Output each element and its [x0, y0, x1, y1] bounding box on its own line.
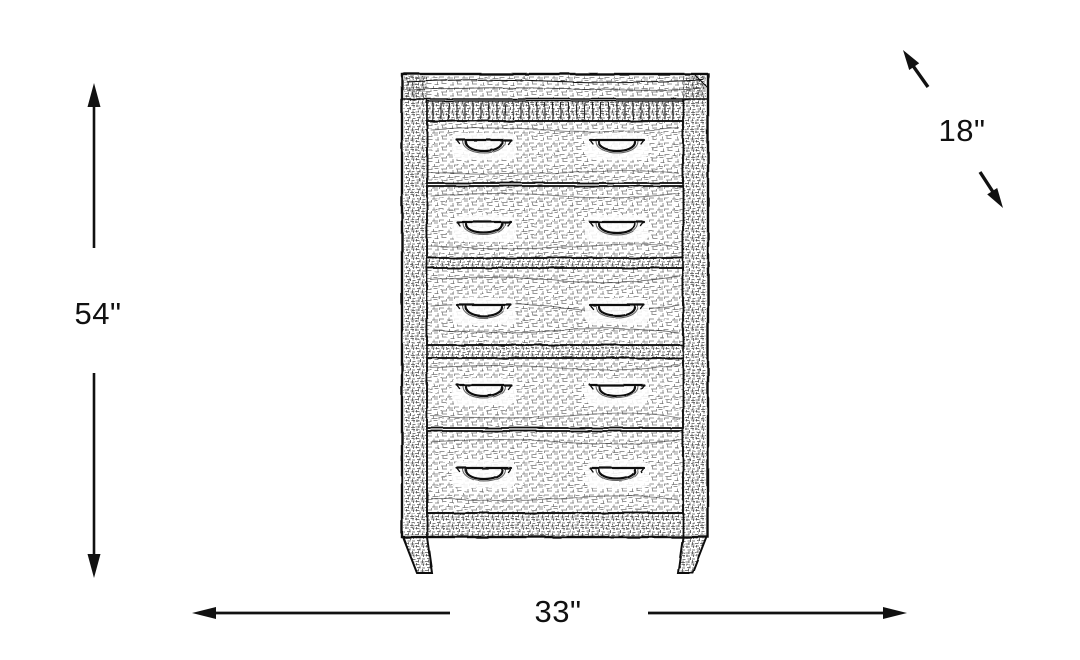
chest-leg-left [403, 537, 432, 573]
depth-dimension-label: 18" [939, 113, 986, 149]
chest-bottom-rail [427, 513, 683, 537]
drawer-divider [427, 258, 683, 268]
drawer-handle-icon [452, 461, 516, 488]
width-dimension-label: 33" [535, 594, 582, 630]
drawer-handle-icon [452, 215, 516, 242]
drawer-handle-icon [452, 133, 516, 160]
chest-illustration [395, 68, 715, 583]
drawer-handle-icon [585, 133, 649, 160]
chest-leg-right [678, 537, 707, 573]
drawer-handle-icon [452, 378, 516, 405]
drawer-handle-icon [585, 298, 649, 325]
drawer-handle-icon [585, 215, 649, 242]
chest-dentil-band [427, 101, 683, 121]
chest-top [402, 75, 708, 99]
chest-left-stile [404, 76, 427, 535]
height-dimension-label: 54" [75, 296, 122, 332]
drawer-handle-icon [585, 378, 649, 405]
drawer-divider [427, 345, 683, 358]
chest-right-stile [683, 76, 706, 535]
dimension-diagram: 54" 33" 18" [0, 0, 1080, 660]
drawer-handle-icon [585, 461, 649, 488]
drawer-handle-icon [452, 298, 516, 325]
